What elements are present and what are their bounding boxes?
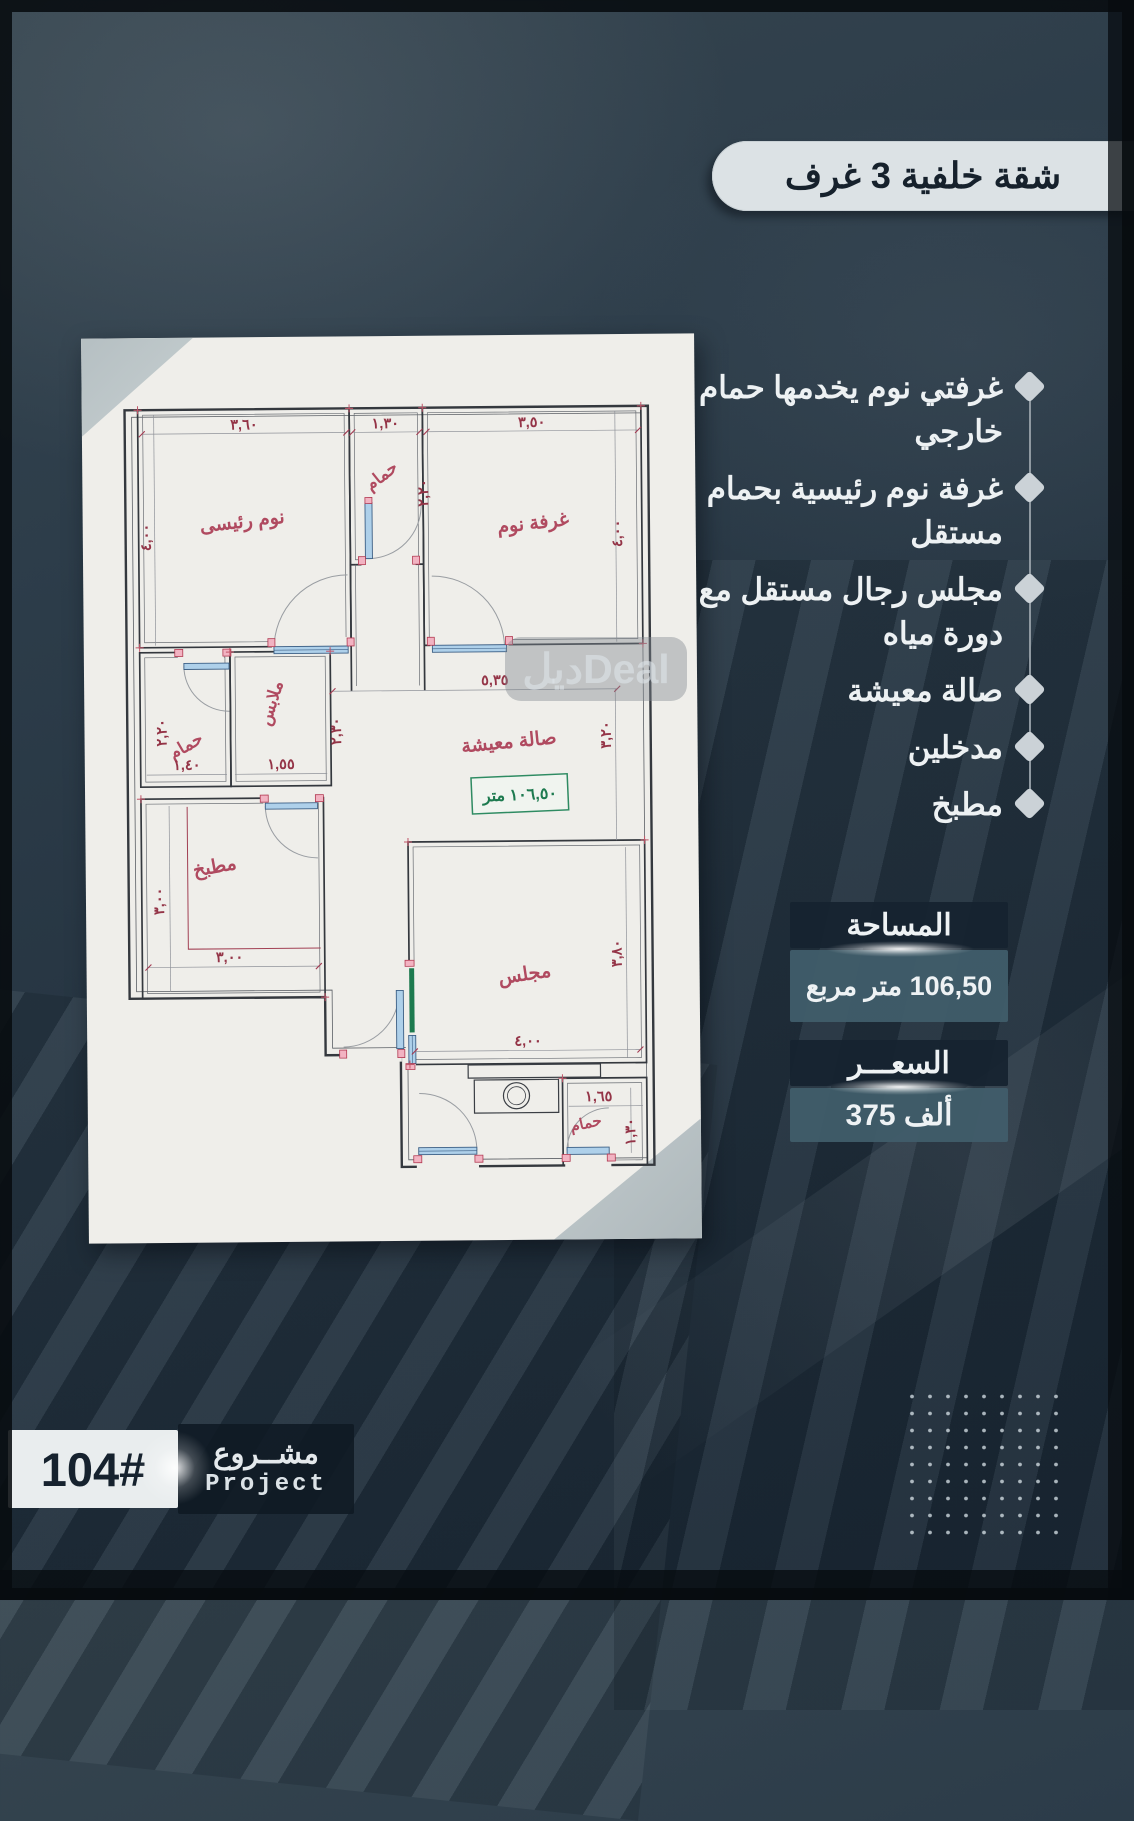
dim-closet-w: ١,٥٥ — [267, 757, 295, 773]
dim-bath-bottom-w: ١,٦٥ — [585, 1089, 613, 1105]
price-header: السعـــر — [790, 1040, 1008, 1086]
floorplan-paper: نوم رئيسى حمام غرفة نوم صالة معيشة ملابس… — [81, 333, 702, 1243]
list-item: مدخلين — [636, 726, 1056, 770]
dim-kitchen-w: ٣,٠٠ — [216, 950, 244, 966]
list-item: غرفتي نوم يخدمها حمام خارجي — [636, 366, 1056, 454]
diamond-bullet-icon — [1013, 673, 1046, 706]
page-title-text: شقة خلفية 3 غرف — [785, 155, 1061, 197]
feature-list: غرفتي نوم يخدمها حمام خارجي غرفة نوم رئي… — [636, 366, 1056, 840]
room-label-bedroom: غرفة نوم — [496, 509, 570, 539]
window-midlines — [274, 648, 511, 1152]
room-label-master: نوم رئيسى — [199, 507, 286, 539]
dim-majlis-h: ٣,٨٠ — [609, 940, 625, 968]
dim-majlis-w: ٤,٠٠ — [514, 1033, 542, 1049]
dim-closet-h: ٢,٣٠ — [329, 718, 345, 746]
project-label-ar: مشــروع — [213, 1438, 319, 1470]
list-item: مجلس رجال مستقل مع دورة مياه — [636, 568, 1056, 656]
diamond-bullet-icon — [1013, 572, 1046, 605]
project-label: مشــروع Project — [178, 1424, 354, 1514]
room-label-bath-bottom: حمام — [569, 1112, 604, 1135]
dim-bath-top-w: ١,٣٠ — [372, 416, 400, 432]
dim-bath-top-h: ٢,٢٠ — [416, 479, 432, 507]
feature-text: مدخلين — [636, 726, 1003, 770]
diamond-bullet-icon — [1013, 787, 1046, 820]
dim-bath-bottom-h: ١,٣٠ — [623, 1118, 639, 1146]
diamond-bullet-icon — [1013, 471, 1046, 504]
diamond-bullet-icon — [1013, 370, 1046, 403]
list-item: صالة معيشة — [636, 669, 1056, 713]
feature-text: مجلس رجال مستقل مع دورة مياه — [636, 568, 1003, 656]
room-label-bath-top: حمام — [361, 457, 402, 495]
total-area-box: ١٠٦,٥٠ متر — [471, 774, 569, 814]
sink-counter — [468, 1064, 601, 1113]
dim-bath-left-h: ٢,٢٠ — [154, 719, 170, 747]
feature-text: صالة معيشة — [636, 669, 1003, 713]
feature-text: مطبخ — [636, 783, 1003, 827]
project-number-badge: 104# — [8, 1430, 178, 1508]
watermark: ديلDeal — [505, 637, 687, 701]
room-label-closet: ملابس — [255, 678, 288, 728]
room-label-kitchen: مطبخ — [191, 853, 238, 883]
sliding-door-green — [409, 968, 415, 1032]
project-label-en: Project — [205, 1470, 327, 1500]
feature-text: غرفة نوم رئيسية بحمام مستقل — [636, 467, 1003, 555]
room-label-majlis: مجلس — [497, 961, 553, 991]
list-item: غرفة نوم رئيسية بحمام مستقل — [636, 467, 1056, 555]
area-header: المساحة — [790, 902, 1008, 948]
page-title: شقة خلفية 3 غرف — [712, 141, 1134, 211]
diamond-bullet-icon — [1013, 730, 1046, 763]
dot-grid-decoration — [903, 1388, 1069, 1538]
dim-master-h: ٤,٠٠ — [139, 524, 155, 552]
dim-hall-h: ٣,٢٠ — [598, 721, 614, 749]
room-label-hall: صالة معيشة — [460, 727, 557, 757]
area-value: 106,50 متر مربع — [790, 950, 1008, 1022]
list-item: مطبخ — [636, 783, 1056, 827]
floorplan-drawing: نوم رئيسى حمام غرفة نوم صالة معيشة ملابس… — [122, 396, 664, 1183]
dim-bedroom-w: ٣,٥٠ — [518, 415, 546, 431]
dim-bedroom-h: ٤,٠٠ — [610, 520, 626, 548]
dim-kitchen-h: ٣,٠٠ — [152, 888, 168, 916]
feature-text: غرفتي نوم يخدمها حمام خارجي — [636, 366, 1003, 454]
dim-bath-left-w: ١,٤٠ — [173, 758, 201, 774]
dim-master-w: ٣,٦٠ — [230, 417, 258, 433]
price-value: 375 ألف — [790, 1088, 1008, 1142]
corner-ticks — [134, 402, 651, 1086]
